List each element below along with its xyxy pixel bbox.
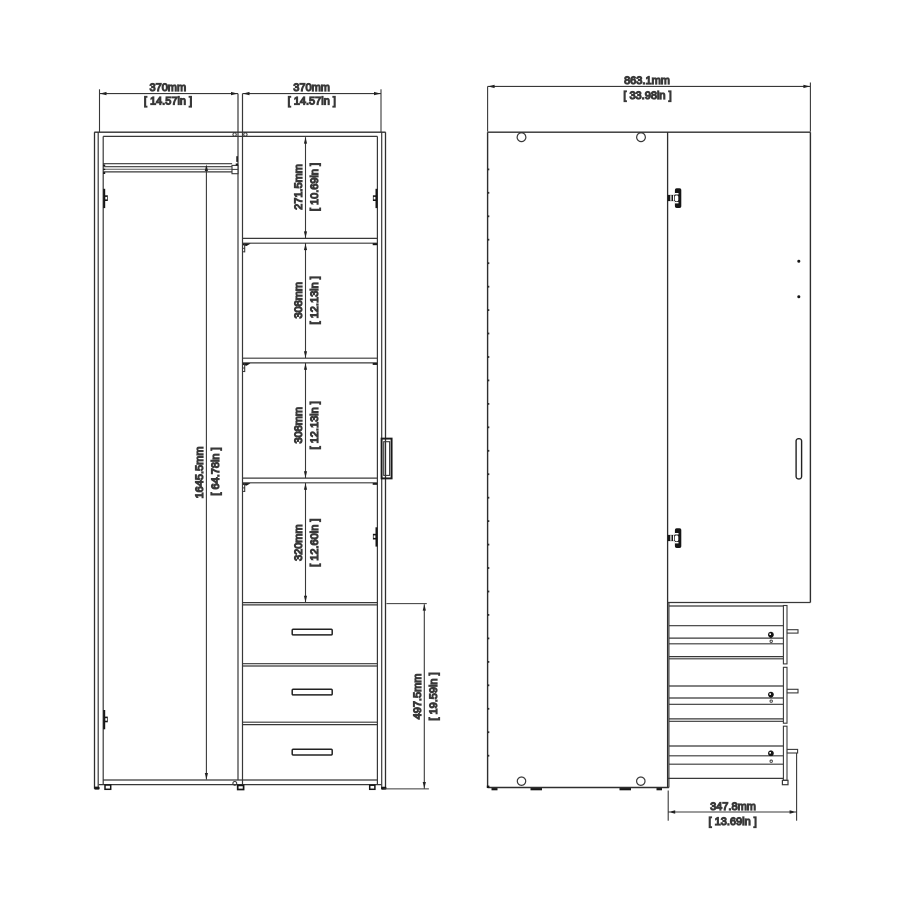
svg-text:370mm: 370mm [149, 82, 186, 94]
svg-text:[ 12.60in ]: [ 12.60in ] [309, 519, 321, 567]
svg-text:1645.5mm: 1645.5mm [194, 447, 206, 499]
svg-text:497.5mm: 497.5mm [412, 674, 424, 720]
svg-text:271.5mm: 271.5mm [293, 164, 305, 210]
svg-text:863.1mm: 863.1mm [624, 75, 670, 87]
svg-text:[ 13.69in ]: [ 13.69in ] [709, 816, 757, 828]
svg-text:320mm: 320mm [293, 524, 305, 561]
svg-text:[ 14.57in ]: [ 14.57in ] [288, 95, 336, 107]
svg-text:370mm: 370mm [293, 82, 330, 94]
svg-text:[ 10.69in ]: [ 10.69in ] [309, 163, 321, 211]
svg-text:308mm: 308mm [293, 407, 305, 444]
svg-text:308mm: 308mm [293, 282, 305, 319]
svg-text:347.8mm: 347.8mm [710, 801, 756, 813]
svg-text:[ 33.98in ]: [ 33.98in ] [623, 90, 671, 102]
svg-text:[ 12.13in ]: [ 12.13in ] [309, 401, 321, 449]
svg-text:[ 14.57in ]: [ 14.57in ] [144, 95, 192, 107]
svg-text:[ 64.78in ]: [ 64.78in ] [210, 447, 222, 495]
svg-text:[ 19.59in ]: [ 19.59in ] [428, 672, 440, 720]
svg-text:[ 12.13in ]: [ 12.13in ] [309, 276, 321, 324]
